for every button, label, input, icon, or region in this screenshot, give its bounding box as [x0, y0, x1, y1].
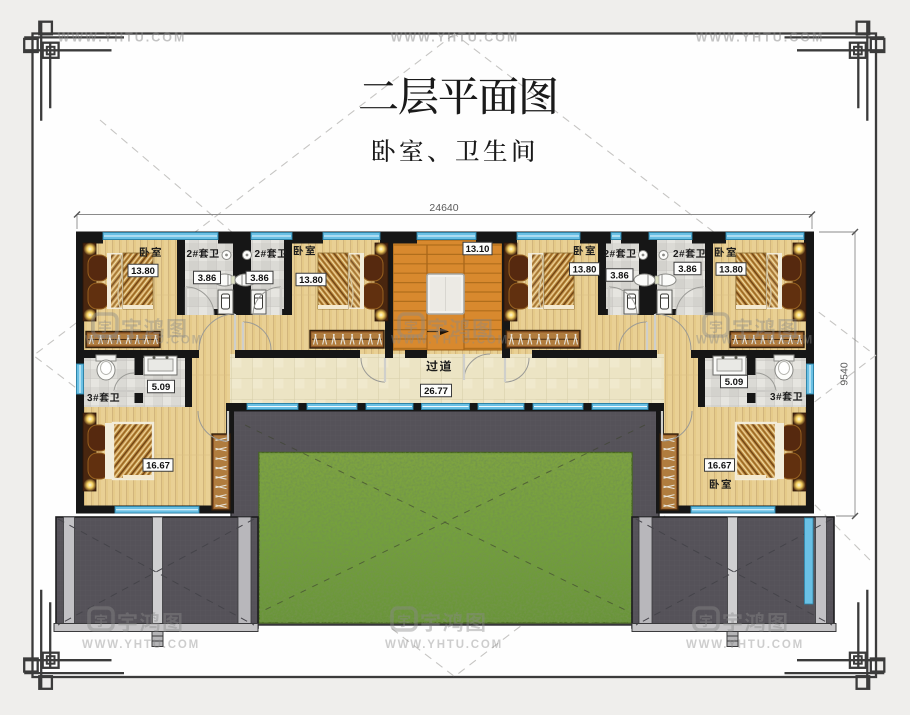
svg-text:16.67: 16.67 — [708, 460, 732, 471]
svg-text:WWW.YHTU.COM: WWW.YHTU.COM — [391, 335, 509, 347]
svg-text:WWW.YHTU.COM: WWW.YHTU.COM — [686, 639, 804, 651]
svg-text:WWW.YHTU.COM: WWW.YHTU.COM — [385, 639, 503, 651]
svg-text:13.10: 13.10 — [466, 244, 490, 255]
svg-text:WWW.YHTU.COM: WWW.YHTU.COM — [58, 31, 187, 45]
svg-text:13.80: 13.80 — [719, 264, 743, 275]
svg-text:5.09: 5.09 — [725, 377, 744, 388]
svg-text:13.80: 13.80 — [299, 275, 323, 286]
svg-text:13.80: 13.80 — [131, 266, 155, 277]
svg-text:3.86: 3.86 — [678, 264, 697, 275]
svg-text:26.77: 26.77 — [424, 386, 448, 397]
svg-text:WWW.YHTU.COM: WWW.YHTU.COM — [85, 335, 203, 347]
svg-text:3.86: 3.86 — [610, 270, 629, 281]
svg-text:16.67: 16.67 — [146, 460, 170, 471]
svg-text:24640: 24640 — [429, 202, 458, 214]
svg-text:3.86: 3.86 — [250, 273, 269, 284]
svg-text:WWW.YHTU.COM: WWW.YHTU.COM — [696, 335, 814, 347]
svg-text:3.86: 3.86 — [198, 273, 217, 284]
svg-text:13.80: 13.80 — [573, 264, 597, 275]
svg-text:WWW.YHTU.COM: WWW.YHTU.COM — [696, 31, 825, 45]
svg-text:9540: 9540 — [839, 362, 851, 386]
svg-text:5.09: 5.09 — [152, 382, 171, 393]
svg-text:WWW.YHTU.COM: WWW.YHTU.COM — [391, 31, 520, 45]
svg-text:WWW.YHTU.COM: WWW.YHTU.COM — [82, 639, 200, 651]
